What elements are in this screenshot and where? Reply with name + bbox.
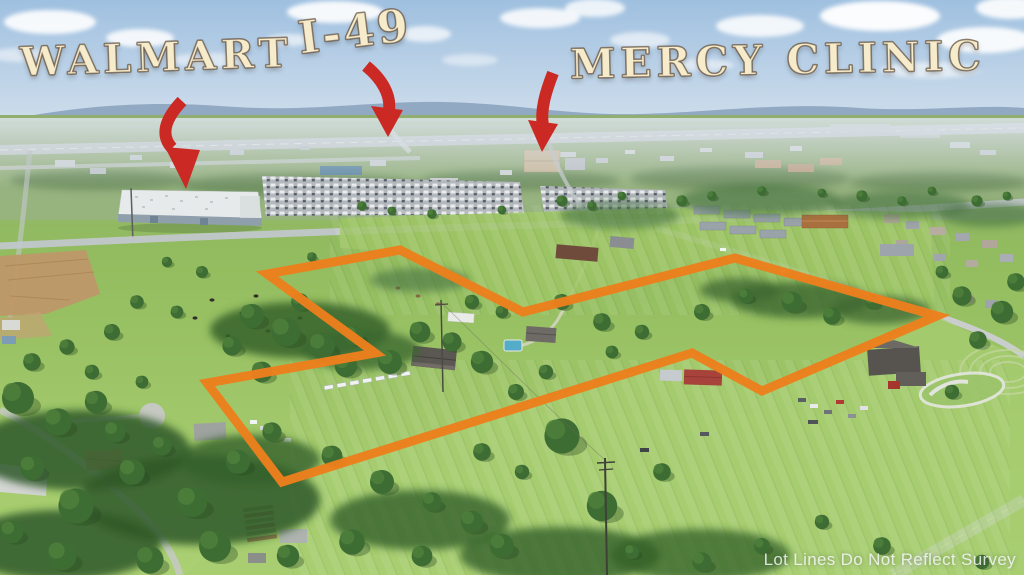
i49-arrow (366, 66, 389, 110)
walmart-arrow (165, 101, 182, 148)
survey-disclaimer: Lot Lines Do Not Reflect Survey (764, 550, 1016, 570)
aerial-listing-photo: WALMART I-49 MERCY CLINIC Lot Lines Do N… (0, 0, 1024, 575)
walmart-label: WALMART (19, 29, 293, 85)
i49-arrowhead-icon (371, 106, 403, 137)
mercy-clinic-label: MERCY CLINIC (570, 32, 987, 89)
annotation-overlay (0, 0, 1024, 575)
lot-boundary-line (207, 250, 937, 482)
mercy-arrowhead-icon (528, 120, 558, 152)
mercy-arrow (542, 73, 553, 126)
walmart-arrowhead-icon (165, 147, 200, 189)
